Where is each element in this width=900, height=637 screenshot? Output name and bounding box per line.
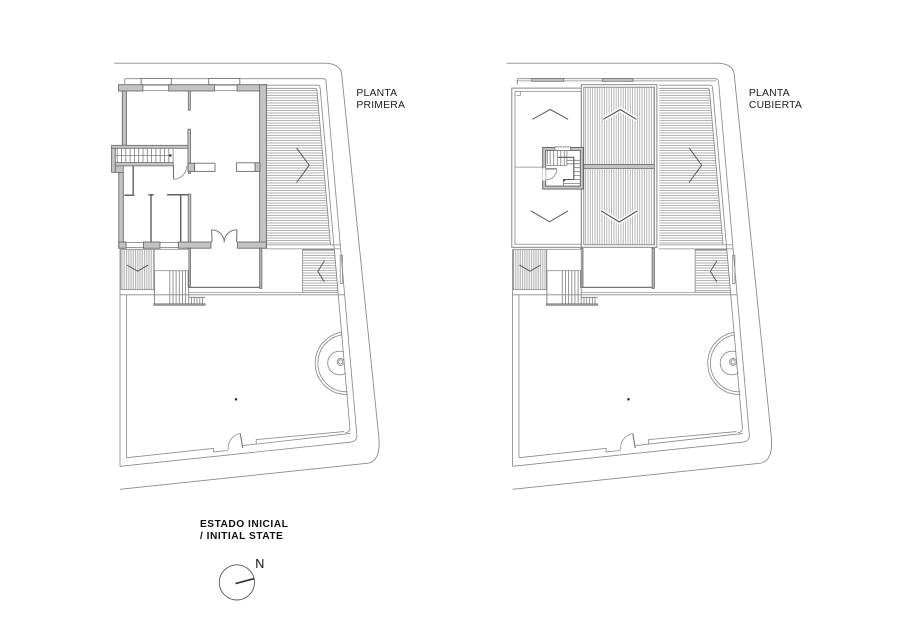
svg-text:PLANTA: PLANTA <box>356 88 397 99</box>
svg-text:PLANTA: PLANTA <box>749 88 790 99</box>
svg-text:ESTADO INICIAL: ESTADO INICIAL <box>200 519 288 530</box>
svg-text:/ INITIAL STATE: / INITIAL STATE <box>200 531 283 542</box>
svg-text:CUBIERTA: CUBIERTA <box>749 100 802 111</box>
svg-text:N: N <box>255 557 264 571</box>
svg-text:PRIMERA: PRIMERA <box>356 100 405 111</box>
